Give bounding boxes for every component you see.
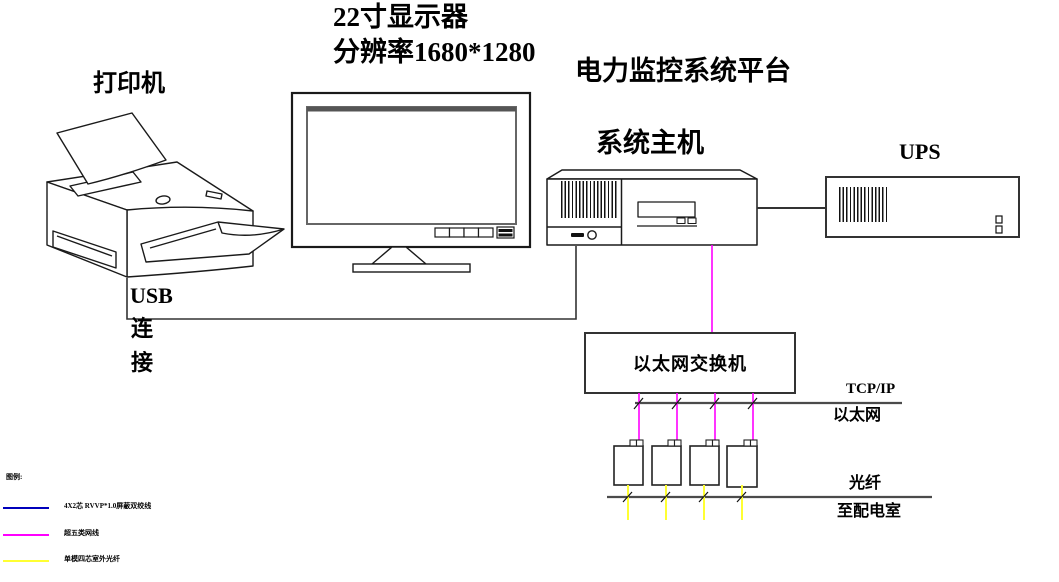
printer-drawing-icon [47,113,284,277]
host-vent-grille-icon [561,181,617,218]
ethernet-label: 以太网 [833,408,881,424]
switch-to-converter-cables [639,393,753,446]
printer-label: 打印机 [93,72,165,96]
legend-line-cat5e [3,534,49,536]
legend-line-twisted-pair [3,507,49,509]
to-distribution-room-label: 至配电室 [837,504,901,520]
monitor-label-line1: 22寸显示器 [333,4,468,31]
fiber-converter-boxes [614,440,757,487]
legend-label-fiber: 单模四芯室外光纤 [64,556,120,563]
host-label: 系统主机 [596,130,704,157]
ups-vent-grille-icon [839,187,889,222]
ups-label: UPS [899,141,941,163]
monitor-label-line2: 分辨率1680*1280 [333,39,536,66]
usb-label-line2: 连 [131,318,153,340]
monitor-drawing-icon [292,93,530,272]
fiber-label: 光纤 [849,476,881,492]
usb-label-line3: 接 [131,352,153,374]
fiber-cables [628,485,742,520]
legend-line-fiber [3,560,49,562]
legend-header: 图例: [6,474,22,481]
platform-label: 电力监控系统平台 [575,58,791,85]
usb-label-line1: USB [130,285,173,307]
legend-label-twisted-pair: 4X2芯 RVVP*1.0屏蔽双绞线 [64,503,151,510]
tcpip-label: TCP/IP [846,382,895,397]
power-monitoring-system-diagram: 打印机 22寸显示器 分辨率1680*1280 电力监控系统平台 系统主机 UP… [0,0,1059,582]
legend-label-cat5e: 超五类网线 [64,530,99,537]
ethernet-switch-label: 以太网交换机 [585,333,795,393]
